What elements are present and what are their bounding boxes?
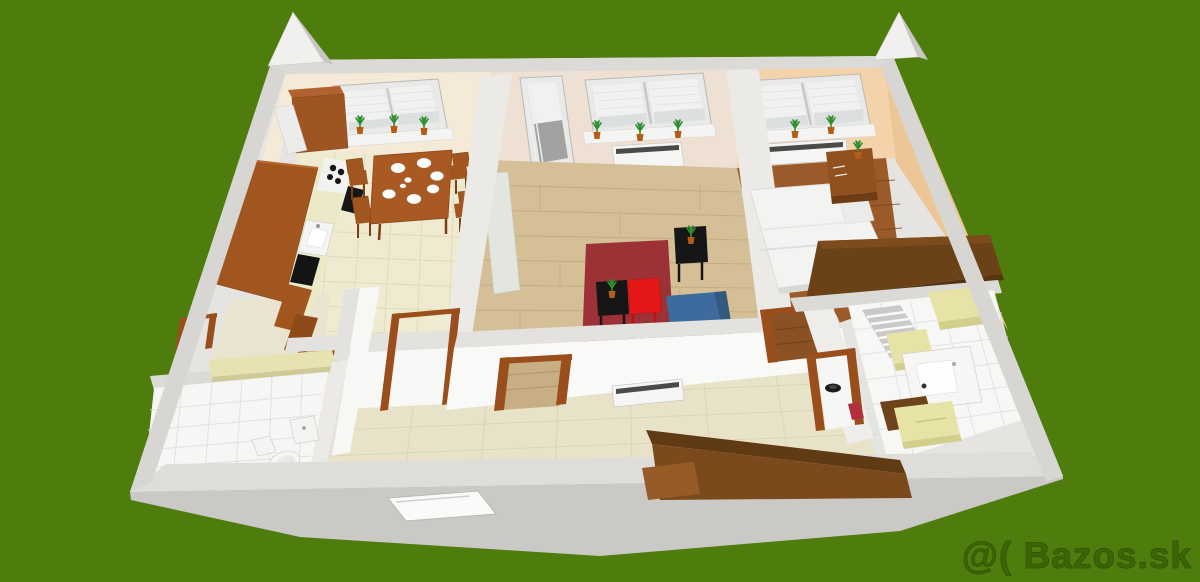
coffee-table-red bbox=[628, 278, 661, 314]
faucet bbox=[316, 224, 320, 228]
burner bbox=[330, 165, 336, 171]
kitchen-window bbox=[333, 79, 454, 147]
dining-table bbox=[370, 150, 452, 224]
screenshot: @( Bazos.sk bbox=[0, 0, 1200, 582]
washer-knob bbox=[922, 384, 927, 389]
wc-sink bbox=[290, 416, 319, 444]
nightstand bbox=[826, 148, 877, 196]
pet-bowl-inner bbox=[829, 385, 837, 389]
burner bbox=[335, 178, 341, 184]
floor-plan-3d-view: @( Bazos.sk bbox=[0, 0, 1200, 582]
faucet bbox=[302, 426, 306, 430]
living-door-opening bbox=[500, 356, 566, 410]
chair-seat bbox=[348, 170, 368, 186]
bench-armrest bbox=[642, 462, 700, 500]
washer-lid bbox=[916, 360, 958, 396]
washer-detail bbox=[952, 362, 956, 366]
chair-seat bbox=[448, 164, 468, 180]
burner bbox=[338, 169, 344, 175]
watermark-text: @( Bazos.sk bbox=[962, 535, 1192, 576]
burner bbox=[327, 174, 333, 180]
